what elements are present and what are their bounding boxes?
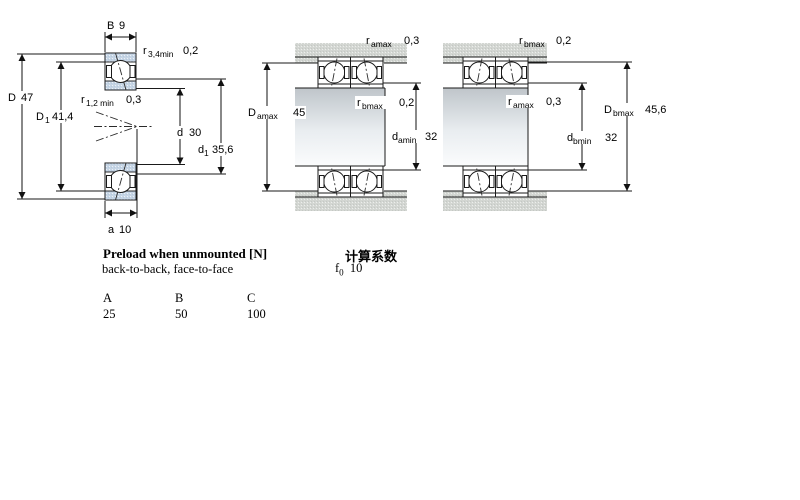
svg-text:10: 10 — [119, 224, 131, 236]
svg-text:47: 47 — [21, 92, 33, 104]
svg-text:9: 9 — [119, 20, 125, 32]
svg-text:a: a — [108, 224, 115, 236]
preload-val-C: 100 — [247, 307, 266, 322]
svg-text:1: 1 — [204, 148, 209, 158]
svg-text:r: r — [366, 35, 370, 47]
preload-val-B: 50 — [175, 307, 188, 322]
svg-text:bmax: bmax — [613, 108, 635, 118]
svg-text:3,4min: 3,4min — [148, 49, 174, 59]
bearing-spec-figure: B 9 r 3,4min 0,2 D 47 D 1 41,4 r 1,2 min… — [0, 0, 800, 500]
dim-label-r34min: r 3,4min 0,2 — [143, 45, 198, 59]
preload-col-C: C — [247, 291, 255, 306]
dim-label-rbmax: r bmax 0,2 — [355, 96, 414, 111]
svg-text:r: r — [81, 94, 85, 106]
svg-text:D: D — [604, 104, 612, 116]
svg-text:amin: amin — [398, 135, 417, 145]
preload-col-B: B — [175, 291, 183, 306]
svg-text:bmax: bmax — [362, 101, 384, 111]
dim-label-D1: D 1 41,4 — [34, 110, 78, 125]
bearing-drawings: B 9 r 3,4min 0,2 D 47 D 1 41,4 r 1,2 min… — [0, 0, 800, 245]
dim-label-dbmin: d bmin 32 — [565, 131, 618, 146]
svg-text:D: D — [8, 92, 16, 104]
svg-text:r: r — [357, 97, 361, 109]
svg-text:45: 45 — [293, 107, 305, 119]
preload-val-A: 25 — [103, 307, 116, 322]
svg-text:0,3: 0,3 — [404, 35, 419, 47]
svg-text:41,4: 41,4 — [52, 111, 73, 123]
dim-label-B: B 9 — [107, 20, 125, 32]
bearing-bottom-half — [105, 163, 136, 200]
svg-text:d: d — [177, 127, 183, 139]
svg-text:0,3: 0,3 — [126, 94, 141, 106]
dim-label-Dbmax: D bmax 45,6 — [602, 103, 670, 118]
svg-text:1: 1 — [45, 115, 50, 125]
svg-text:bmin: bmin — [573, 136, 592, 146]
svg-text:45,6: 45,6 — [645, 104, 666, 116]
svg-text:amax: amax — [257, 111, 279, 121]
paired-bearings-arrangement-b: r bmax 0,2 r amax 0,3 d bmin 32 D bmax 4… — [443, 35, 670, 211]
svg-text:r: r — [143, 45, 147, 57]
calc-factor-value: f0 10 — [335, 261, 362, 278]
bearing-top-half — [105, 53, 136, 90]
paired-bearings-arrangement-a: r amax 0,3 D amax 45 r bmax 0,2 d amin 3… — [246, 35, 438, 211]
preload-col-A: A — [103, 291, 112, 306]
svg-text:0,2: 0,2 — [183, 45, 198, 57]
dim-label-d1: d 1 35,6 — [196, 143, 238, 158]
dim-label-Damax: D amax 45 — [246, 106, 306, 121]
dim-label-damin: d amin 32 — [390, 130, 438, 145]
dim-label-ramax: r amax 0,3 — [506, 95, 562, 110]
svg-text:32: 32 — [425, 131, 437, 143]
svg-text:amax: amax — [371, 39, 393, 49]
svg-text:0,2: 0,2 — [399, 97, 414, 109]
svg-text:35,6: 35,6 — [212, 144, 233, 156]
svg-text:30: 30 — [189, 127, 201, 139]
dim-label-d: d 30 — [175, 126, 204, 139]
svg-text:1,2 min: 1,2 min — [86, 98, 114, 108]
svg-text:32: 32 — [605, 132, 617, 144]
svg-text:r: r — [508, 96, 512, 108]
preload-subtitle: back-to-back, face-to-face — [102, 262, 233, 277]
contact-line-upper — [96, 112, 137, 127]
preload-title: Preload when unmounted [N] — [103, 246, 267, 262]
dim-label-D: D 47 — [5, 91, 38, 104]
svg-text:D: D — [248, 107, 256, 119]
dim-label-r12min: r 1,2 min 0,3 — [79, 93, 143, 108]
svg-text:amax: amax — [513, 100, 535, 110]
svg-text:0,3: 0,3 — [546, 96, 561, 108]
contact-line-lower — [96, 127, 137, 142]
dim-label-a: a 10 — [108, 224, 131, 236]
svg-text:bmax: bmax — [524, 39, 546, 49]
svg-text:0,2: 0,2 — [556, 35, 571, 47]
svg-text:B: B — [107, 20, 114, 32]
svg-text:r: r — [519, 35, 523, 47]
svg-text:D: D — [36, 111, 44, 123]
single-bearing-section-drawing: B 9 r 3,4min 0,2 D 47 D 1 41,4 r 1,2 min… — [5, 20, 238, 236]
